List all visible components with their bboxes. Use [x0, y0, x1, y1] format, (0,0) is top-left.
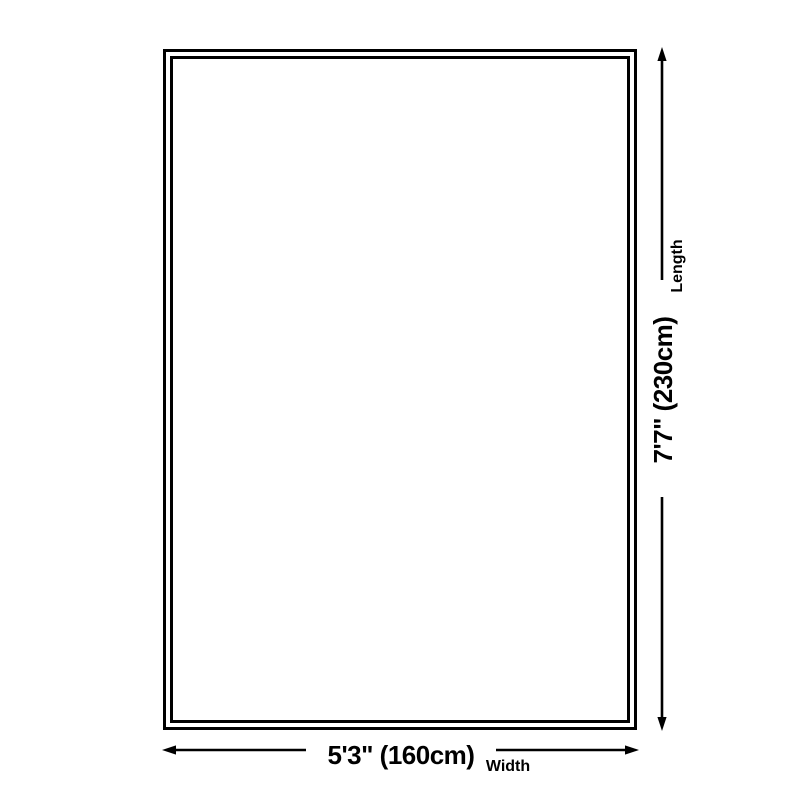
length-value: 7'7" (230cm): [650, 317, 676, 464]
width-value: 5'3" (160cm): [328, 742, 475, 768]
rug-inner-border: [170, 56, 630, 723]
arrow-down-icon: [657, 717, 666, 731]
arrow-right-icon: [625, 745, 639, 754]
width-axis-label: Width: [486, 759, 530, 775]
rug-outline: [163, 49, 637, 730]
length-axis-label: Length: [670, 239, 686, 292]
arrow-left-icon: [162, 745, 176, 754]
rug-size-diagram: 7'7" (230cm) Length 5'3" (160cm) Width: [0, 0, 800, 800]
arrow-up-icon: [657, 47, 666, 61]
